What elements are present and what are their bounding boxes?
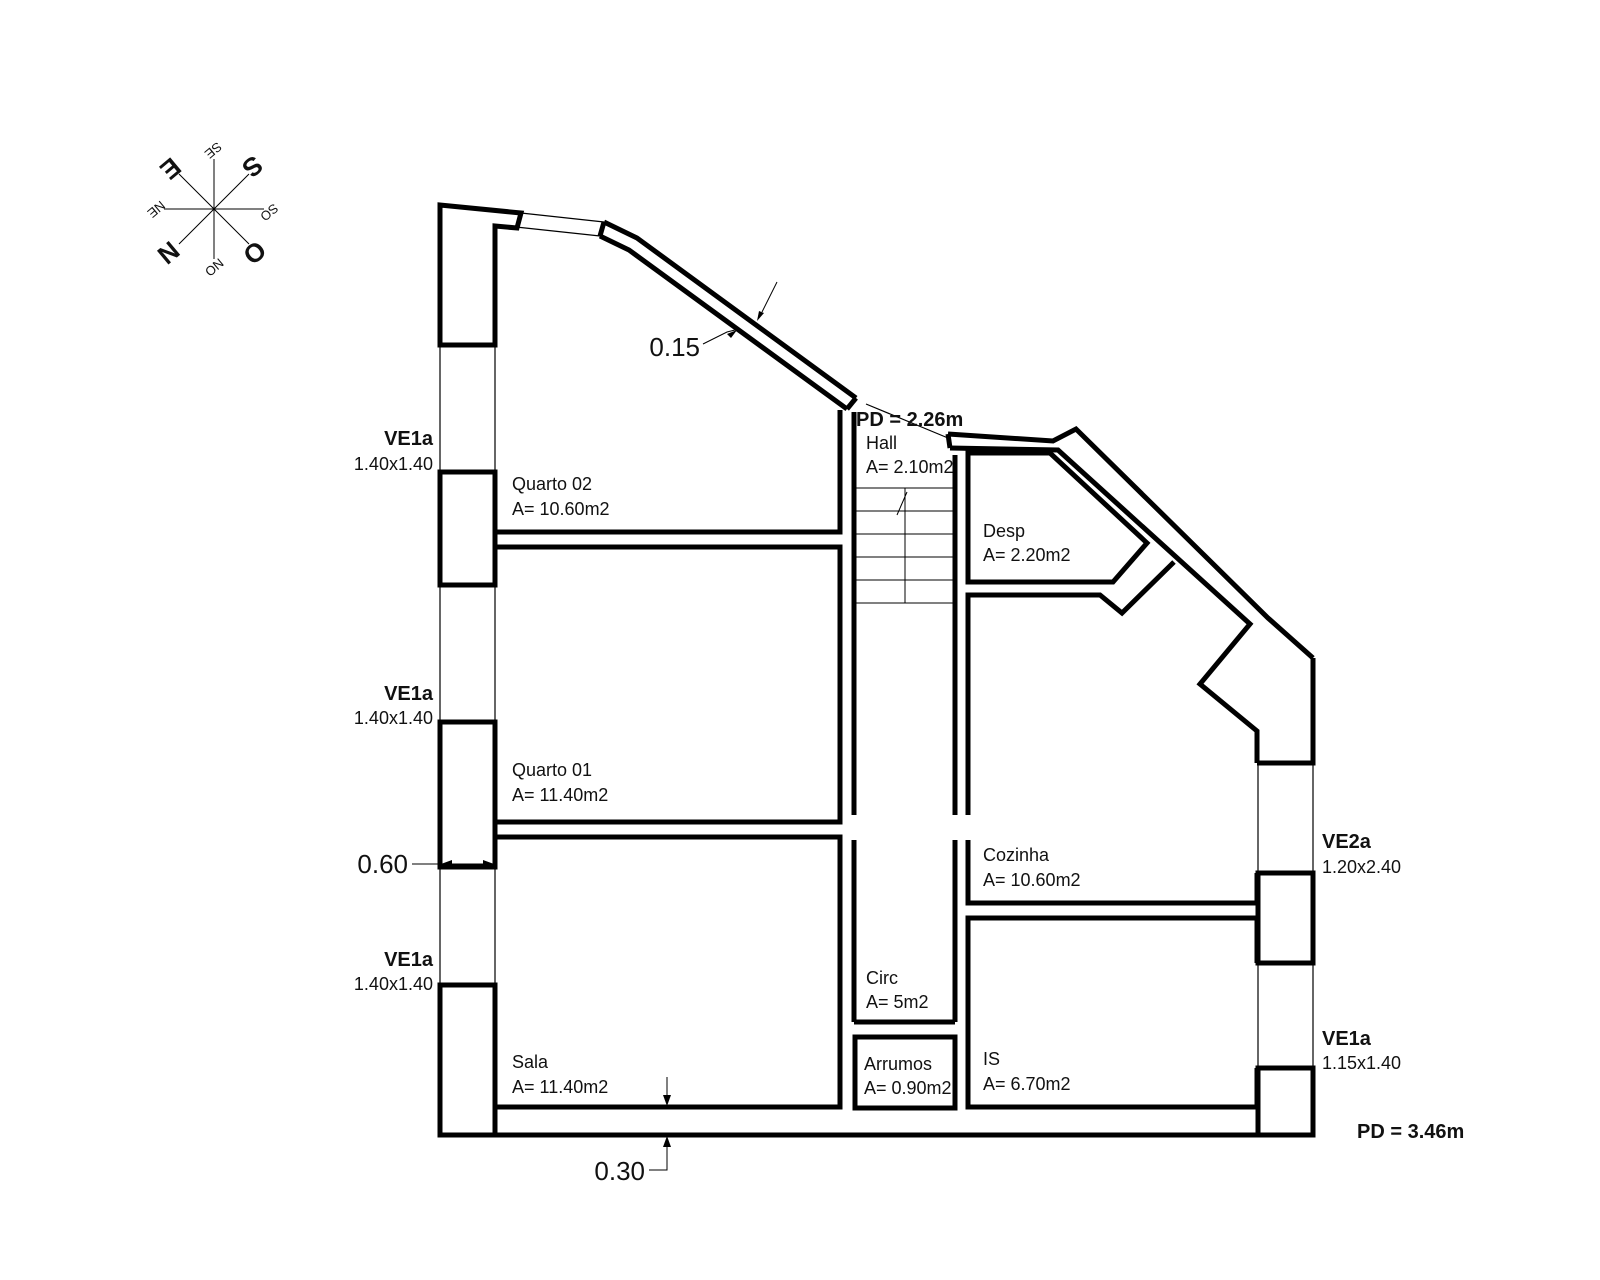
room-area-hall: A= 2.10m2 — [866, 457, 954, 477]
room-area-quarto01: A= 11.40m2 — [512, 785, 608, 805]
compass-ne-label: NE — [144, 198, 168, 221]
room-area-quarto02: A= 10.60m2 — [512, 499, 610, 519]
window-label-left1: VE1a — [384, 428, 434, 450]
room-label-quarto01: Quarto 01 — [512, 760, 592, 780]
window-lines — [440, 213, 1313, 1068]
ceiling-height-lower: PD = 3.46m — [1357, 1121, 1464, 1143]
window-label-left2: VE1a — [384, 683, 434, 705]
room-area-circ: A= 5m2 — [866, 992, 929, 1012]
floor-plan-drawing: 0.15 0.60 0.30 E S N O SE SO NO NE Quart… — [0, 0, 1600, 1280]
compass-n-label: N — [152, 235, 186, 270]
compass-o-label: O — [237, 235, 272, 271]
compass-no-label: NO — [202, 255, 227, 279]
room-label-cozinha: Cozinha — [983, 845, 1050, 865]
window-size-right-bottom: 1.15x1.40 — [1322, 1053, 1401, 1073]
window-label-right-bottom: VE1a — [1322, 1028, 1372, 1050]
window-label-left3: VE1a — [384, 949, 434, 971]
room-label-circ: Circ — [866, 968, 898, 988]
room-area-arrumos: A= 0.90m2 — [864, 1078, 952, 1098]
window-size-left2: 1.40x1.40 — [354, 708, 433, 728]
room-area-sala: A= 11.40m2 — [512, 1077, 608, 1097]
compass-rose: E S N O SE SO NO NE — [144, 139, 281, 279]
window-size-right-top: 1.20x2.40 — [1322, 857, 1401, 877]
compass-s-label: S — [236, 150, 269, 184]
dim-bottom-wall-value: 0.30 — [594, 1156, 645, 1186]
floor-plan-page: 0.15 0.60 0.30 E S N O SE SO NO NE Quart… — [0, 0, 1600, 1280]
room-label-is: IS — [983, 1049, 1000, 1069]
stairs — [855, 488, 954, 603]
window-size-left1: 1.40x1.40 — [354, 454, 433, 474]
room-label-sala: Sala — [512, 1052, 549, 1072]
room-label-arrumos: Arrumos — [864, 1054, 932, 1074]
dim-diag-wall-value: 0.15 — [649, 332, 700, 362]
room-label-quarto02: Quarto 02 — [512, 474, 592, 494]
compass-se-label: SE — [202, 139, 225, 162]
compass-so-label: SO — [257, 201, 281, 225]
room-label-desp: Desp — [983, 521, 1025, 541]
dim-left-wall-value: 0.60 — [357, 849, 408, 879]
room-area-cozinha: A= 10.60m2 — [983, 870, 1081, 890]
room-area-is: A= 6.70m2 — [983, 1074, 1071, 1094]
compass-e-label: E — [154, 152, 187, 186]
room-label-hall: Hall — [866, 433, 897, 453]
window-size-left3: 1.40x1.40 — [354, 974, 433, 994]
ceiling-height-upper: PD = 2.26m — [856, 409, 963, 431]
window-label-right-top: VE2a — [1322, 831, 1372, 853]
room-area-desp: A= 2.20m2 — [983, 545, 1071, 565]
